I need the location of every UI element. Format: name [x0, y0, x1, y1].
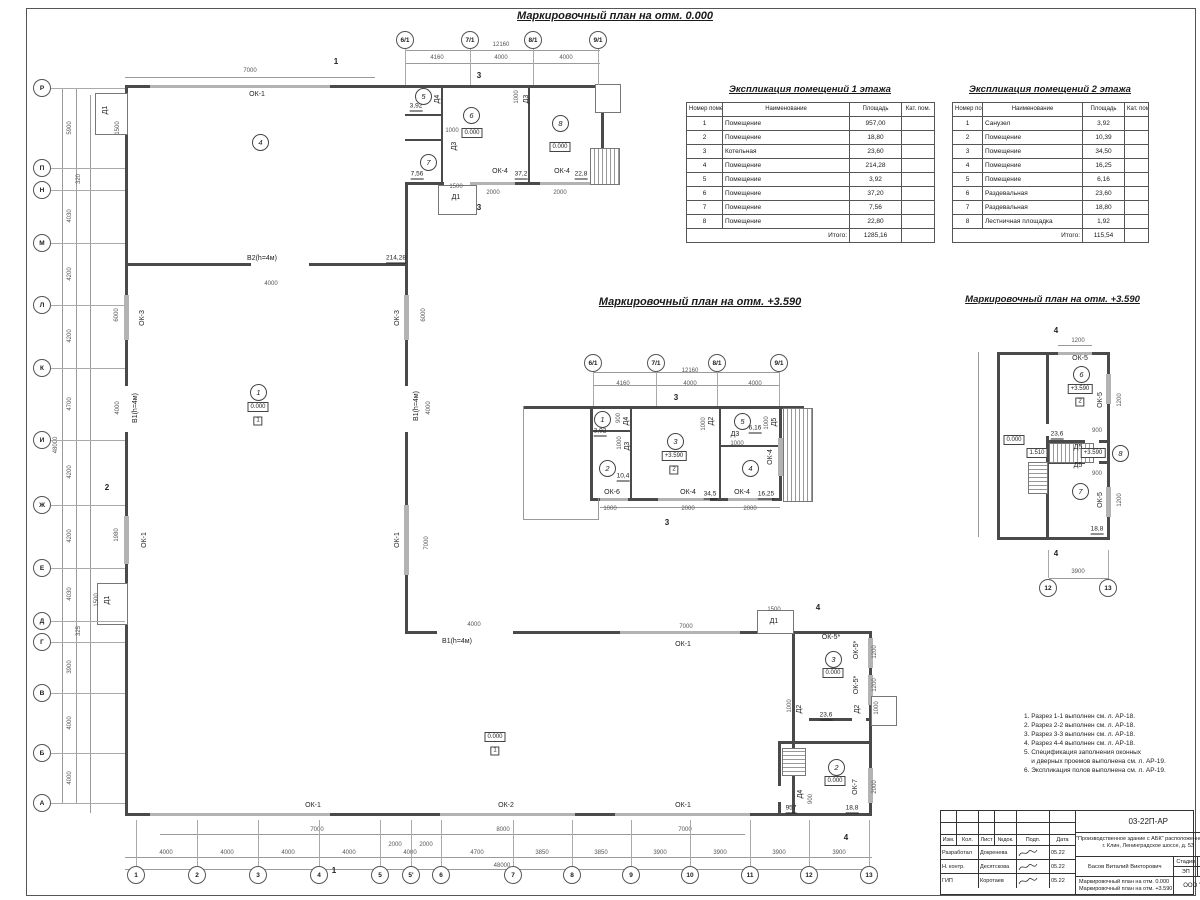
plan-label: Д1: [452, 194, 461, 202]
cell-number: 7: [687, 201, 723, 215]
cell-name: Помещение: [723, 173, 850, 187]
axis-circle: 6: [432, 866, 450, 884]
explication-table: Номер помещ. Наименование Площадь Кат. п…: [686, 102, 935, 243]
plan-label: 8000: [496, 826, 509, 834]
plan-label: 1000: [700, 417, 708, 430]
plan-label: В1(h=4м): [442, 638, 472, 646]
plan-label: 4: [844, 834, 848, 842]
plan-label: 1500: [114, 121, 122, 134]
stage-header-row: Стадия Лист: [1174, 857, 1200, 867]
window-segment: [600, 498, 628, 501]
plan-label: 4200: [66, 267, 74, 280]
axis-line: [51, 753, 125, 754]
role-date: 05.22: [1050, 874, 1075, 888]
cell-category: [902, 117, 935, 131]
plan-label: 7000: [679, 623, 692, 631]
cell-name: Помещение: [983, 131, 1083, 145]
plan-label: 2000: [743, 505, 756, 513]
axis-line: [869, 820, 870, 866]
table-row: 1 Санузел 3,92: [953, 117, 1149, 131]
cell-category: [902, 201, 935, 215]
window-segment: [124, 295, 129, 340]
axis-circle: 8/1: [524, 31, 542, 49]
empty-cell: [979, 823, 995, 834]
dimension-line: [76, 88, 77, 803]
cell-area: 3,92: [1083, 117, 1125, 131]
axis-line: [593, 372, 594, 406]
axis-circle: 8: [563, 866, 581, 884]
project-line2: г. Клин, Ленинградское шоссе, д. 53: [1076, 843, 1200, 850]
titleblock-header-row: Изм. Кол. Лист №док. Подп. Дата: [941, 835, 1075, 846]
plan-label: 3850: [535, 849, 548, 857]
cell-category: [902, 173, 935, 187]
plan-label: 2: [105, 484, 109, 492]
room-number: 8: [1112, 445, 1129, 462]
axis-circle: К: [33, 359, 51, 377]
plan-label: 0.000: [549, 142, 570, 152]
plan-label: Д4: [797, 790, 805, 799]
plan-label: Д2: [796, 705, 804, 714]
plan-label: 23,6: [1051, 431, 1064, 440]
cell-category: [1125, 131, 1149, 145]
plan-label: 6,16: [749, 425, 762, 434]
notes-list: 1. Разрез 1-1 выполнен см. л. АР-18.2. Р…: [1024, 712, 1196, 775]
plan-label: 1000: [786, 699, 794, 712]
plan-label: 320: [75, 174, 83, 184]
axis-line: [656, 372, 657, 406]
axis-line: [258, 820, 259, 866]
plan-label: ОК-3: [139, 310, 147, 326]
plan-label: 23,6: [820, 712, 833, 721]
table-row: 2 Помещение 18,80: [687, 131, 935, 145]
plan-label: ОК-5*: [853, 641, 861, 659]
cell-category: [1125, 187, 1149, 201]
cell-number: 5: [687, 173, 723, 187]
axis-line: [809, 820, 810, 866]
total-value: 1285,16: [850, 229, 902, 243]
plan-label: 1000: [616, 436, 624, 449]
axis-circle: Е: [33, 559, 51, 577]
plan-label: 4000: [281, 849, 294, 857]
plan-label: ОК-4: [734, 489, 750, 497]
axis-line: [717, 372, 718, 406]
plan0-title: Маркировочный план на отм. 0.000: [455, 10, 775, 22]
plan-label: 3900: [653, 849, 666, 857]
cell-area: 22,80: [850, 215, 902, 229]
room-number: 7: [420, 154, 437, 171]
plan-label: 0.000: [822, 668, 843, 678]
plan-label: 1: [334, 58, 338, 66]
door-opening: [852, 717, 866, 722]
subtitle-line1: Маркировочный план на отм. 0.000: [1079, 879, 1173, 886]
plan-label: +3.590: [1068, 384, 1093, 394]
plan-label: 3900: [66, 660, 74, 673]
roof-outline: [598, 498, 599, 520]
roof-outline: [523, 519, 599, 520]
plan-label: 6000: [420, 308, 428, 321]
axis-line: [197, 820, 198, 866]
wall-segment: [792, 631, 795, 816]
empty-cell: [1050, 823, 1075, 834]
table-row: 8 Лестничная площадка 1,92: [953, 215, 1149, 229]
room-number: 4: [252, 134, 269, 151]
plan-label: Д5: [1074, 462, 1083, 470]
plan-label: 7000: [310, 826, 323, 834]
cell-category: [1125, 117, 1149, 131]
cell-name: Помещение: [983, 145, 1083, 159]
col-kol: Кол.: [957, 835, 979, 845]
cell-category: [902, 229, 935, 243]
cell-name: Помещение: [983, 159, 1083, 173]
table-row: 7 Раздевальная 18,80: [953, 201, 1149, 215]
plan-label: 4000: [114, 401, 122, 414]
empty-cell: [979, 811, 995, 822]
table-row: 5 Помещение 3,92: [687, 173, 935, 187]
cell-name: Котельная: [723, 145, 850, 159]
cell-area: 3,92: [850, 173, 902, 187]
cell-area: 7,56: [850, 201, 902, 215]
cell-area: 1,92: [1083, 215, 1125, 229]
cell-area: 6,16: [1083, 173, 1125, 187]
note-line: 2. Разрез 2-2 выполнен см. л. АР-18.: [1024, 721, 1196, 730]
plan-label: 7000: [243, 67, 256, 75]
plan-label: 1980: [113, 528, 121, 541]
room-number: 8: [552, 115, 569, 132]
plan-label: 4000: [683, 380, 696, 388]
col-header-area: Площадь: [1083, 103, 1125, 117]
cell-name: Раздевальная: [983, 187, 1083, 201]
plan-label: 4: [1054, 550, 1058, 558]
axis-circle: Р: [33, 79, 51, 97]
wall-segment: [719, 406, 721, 500]
plan1-title: Маркировочный план на отм. +3.590: [585, 296, 815, 308]
subtitle-line2: Маркировочный план на отм. +3.590: [1079, 886, 1173, 893]
axis-line: [319, 820, 320, 866]
cell-number: 8: [687, 215, 723, 229]
cell-category: [902, 159, 935, 173]
axis-circle: 5': [402, 866, 420, 884]
window-segment: [124, 516, 129, 564]
plan-label: 1200: [1071, 337, 1084, 345]
plan-label: ОК-5*: [853, 676, 861, 694]
window-segment: [1106, 374, 1111, 404]
cell-number: 8: [953, 215, 983, 229]
plan-label: В1(h=4м): [413, 391, 421, 421]
cell-area: 16,25: [1083, 159, 1125, 173]
plan-label: 4030: [66, 209, 74, 222]
plan-label: 1: [490, 747, 499, 756]
titleblock-left: Изм. Кол. Лист №док. Подп. Дата Разработ…: [941, 811, 1076, 894]
plan-label: 1000: [445, 127, 458, 135]
plan-label: ОК-4: [554, 168, 570, 176]
note-line: 6. Экспликация полов выполнена см. л. АР…: [1024, 766, 1196, 775]
plan2-title: Маркировочный план на отм. +3.590: [950, 294, 1155, 305]
staircase: [1028, 462, 1048, 494]
staircase: [782, 748, 806, 776]
cell-name: Помещение: [723, 215, 850, 229]
cell-area: 23,60: [850, 145, 902, 159]
plan-label: +3.590: [662, 451, 687, 461]
cell-area: 23,60: [1083, 187, 1125, 201]
plan-label: Д1: [102, 106, 110, 115]
col-header-number: Номер помещ.: [953, 103, 983, 117]
plan-label: 3900: [713, 849, 726, 857]
cell-area: 34,50: [1083, 145, 1125, 159]
cell-name: Раздевальная: [983, 201, 1083, 215]
axis-line: [51, 168, 125, 169]
stage-sheet-grid: Стадия Лист ЭП 16: [1174, 857, 1200, 876]
cell-name: Помещение: [723, 131, 850, 145]
plan-label: 1200: [1116, 393, 1124, 406]
axis-line: [51, 693, 125, 694]
titleblock-spacer-row: [941, 823, 1075, 835]
axis-circle: Ж: [33, 496, 51, 514]
table-total-row: Итого: 115,54: [953, 229, 1149, 243]
plan-label: 4030: [66, 587, 74, 600]
col-header-name: Наименование: [723, 103, 850, 117]
axis-line: [572, 820, 573, 866]
plan-label: Д4: [623, 417, 631, 426]
axis-circle: 12: [1039, 579, 1057, 597]
axis-circle: М: [33, 234, 51, 252]
cell-number: 2: [687, 131, 723, 145]
cell-number: 4: [687, 159, 723, 173]
cell-number: 1: [687, 117, 723, 131]
wall-segment: [997, 352, 1000, 540]
plan-label: В2(h=4м): [247, 255, 277, 263]
role-date: 05.22: [1050, 846, 1075, 859]
window-segment: [404, 295, 409, 340]
plan-label: 1000: [513, 90, 521, 103]
cell-area: 10,39: [1083, 131, 1125, 145]
cell-number: 6: [687, 187, 723, 201]
dimension-line: [1049, 578, 1109, 579]
col-header-category: Кат. пом.: [902, 103, 935, 117]
plan-label: 4200: [66, 529, 74, 542]
entrance-porch: [97, 583, 128, 625]
cell-category: [1125, 215, 1149, 229]
cell-number: 5: [953, 173, 983, 187]
signature-icon: [1018, 848, 1038, 858]
axis-circle: А: [33, 794, 51, 812]
plan-label: 4700: [470, 849, 483, 857]
plan-label: 4000: [220, 849, 233, 857]
axis-circle: 11: [741, 866, 759, 884]
stage-value: ЭП: [1174, 867, 1198, 876]
plan-label: 4000: [403, 849, 416, 857]
company-name: ООО "Аль: [1174, 877, 1200, 894]
plan-label: 1200: [871, 678, 879, 691]
total-value: 115,54: [1083, 229, 1125, 243]
plan-label: 16,25: [758, 491, 774, 500]
col-data: Дата: [1050, 835, 1075, 845]
cell-category: [1125, 229, 1149, 243]
wall-segment: [523, 406, 804, 409]
plan-label: 3900: [832, 849, 845, 857]
plan-label: 957: [786, 805, 797, 814]
plan-label: Д5: [771, 418, 779, 427]
window-segment: [1106, 487, 1111, 517]
signature: [1017, 846, 1050, 859]
plan-label: В1(h=4м): [132, 393, 140, 423]
room-number: 3: [667, 433, 684, 450]
window-segment: [440, 813, 575, 816]
plan-label: 2000: [486, 189, 499, 197]
table-row: 6 Раздевальная 23,60: [953, 187, 1149, 201]
note-line: 3. Разрез 3-3 выполнен см. л. АР-18.: [1024, 730, 1196, 739]
stage-label: Стадия: [1174, 857, 1198, 866]
plan-label: ОК-4: [492, 168, 508, 176]
plan-label: 900: [615, 413, 623, 423]
cell-category: [1125, 145, 1149, 159]
plan-label: 3: [477, 204, 481, 212]
plan-label: ОК-5*: [822, 634, 840, 642]
axis-line: [513, 820, 514, 866]
window-segment: [150, 813, 330, 816]
door-opening: [777, 786, 782, 802]
titleblock-role-row: Н. контр. Десятскова 05.22: [941, 860, 1075, 874]
staircase: [783, 408, 813, 502]
cell-category: [902, 215, 935, 229]
axis-line: [598, 49, 599, 85]
plan-label: 1200: [871, 645, 879, 658]
axis-circle: 9/1: [770, 354, 788, 372]
room-number: 6: [1073, 366, 1090, 383]
note-line: и дверных проемов выполнена см. л. АР-19…: [1024, 757, 1196, 766]
stair-annex: [595, 84, 621, 113]
axis-line: [690, 820, 691, 866]
cell-number: 2: [953, 131, 983, 145]
plan-label: 34,5: [704, 491, 717, 500]
plan-label: 3: [665, 519, 669, 527]
axis-circle: 4: [310, 866, 328, 884]
axis-circle: Д: [33, 612, 51, 630]
cell-name: Помещение: [983, 173, 1083, 187]
plan-label: 1.510: [1026, 448, 1047, 458]
plan-label: 1000: [873, 701, 881, 714]
plan-label: 2: [1075, 398, 1084, 407]
wall-segment: [997, 352, 1110, 355]
cell-category: [902, 131, 935, 145]
wall-segment: [405, 139, 443, 141]
room-number: 7: [1072, 483, 1089, 500]
axis-circle: И: [33, 431, 51, 449]
cell-area: 18,80: [850, 131, 902, 145]
axis-circle: 9/1: [589, 31, 607, 49]
wall-segment: [590, 406, 593, 501]
axis-line: [405, 49, 406, 85]
cell-category: [1125, 201, 1149, 215]
cell-name: Лестничная площадка: [983, 215, 1083, 229]
plan-label: ОК-1: [675, 641, 691, 649]
staircase: [590, 148, 620, 185]
cell-area: 214,28: [850, 159, 902, 173]
dimension-line: [125, 857, 872, 858]
axis-line: [411, 820, 412, 866]
window-segment: [404, 505, 409, 575]
cell-area: 37,20: [850, 187, 902, 201]
role-label: ГИП: [941, 874, 979, 888]
plan-label: 37,2: [515, 171, 528, 180]
axis-circle: 9: [622, 866, 640, 884]
plan-label: 4160: [616, 380, 629, 388]
plan-label: ОК-7: [852, 779, 860, 795]
plan-label: 1: [253, 417, 262, 426]
axis-circle: 7: [504, 866, 522, 884]
titleblock-spacer-row: [941, 811, 1075, 823]
plan-label: +3.590: [1081, 448, 1106, 458]
axis-line: [51, 505, 125, 506]
cell-area: 18,80: [1083, 201, 1125, 215]
empty-cell: [995, 811, 1017, 822]
plan-label: ОК-1: [305, 802, 321, 810]
room-number: 5: [734, 413, 751, 430]
axis-line: [380, 820, 381, 866]
plan-label: 4700: [66, 397, 74, 410]
plan-label: ОК-2: [498, 802, 514, 810]
axis-line: [51, 88, 125, 89]
empty-cell: [941, 811, 957, 822]
axis-circle: 5: [371, 866, 389, 884]
plan-label: 5900: [66, 121, 74, 134]
axis-line: [1048, 550, 1049, 578]
plan-label: 6000: [113, 308, 121, 321]
plan-label: ОК-1: [675, 802, 691, 810]
wall-segment: [778, 741, 872, 744]
plan-label: 12160: [682, 367, 699, 375]
window-segment: [540, 182, 590, 185]
table-header-row: Номер помещ. Наименование Площадь Кат. п…: [687, 103, 935, 117]
col-list: Лист: [979, 835, 995, 845]
plan-label: 18,8: [846, 805, 859, 814]
plan-label: 1200: [1116, 493, 1124, 506]
axis-circle: 1: [127, 866, 145, 884]
plan-label: ОК-1: [394, 532, 402, 548]
axis-circle: 3: [249, 866, 267, 884]
titleblock-bottom-row: Маркировочный план на отм. 0.000 Маркиро…: [1076, 877, 1200, 894]
dimension-line: [160, 834, 745, 835]
titleblock-role-row: ГИП Коротаев 05.22: [941, 874, 1075, 888]
plan-label: 4000: [66, 771, 74, 784]
axis-circle: Г: [33, 633, 51, 651]
col-ndok: №док.: [995, 835, 1017, 845]
window-segment: [615, 813, 750, 816]
room-number: 3: [825, 651, 842, 668]
col-izm: Изм.: [941, 835, 957, 845]
empty-cell: [957, 823, 979, 834]
entrance-porch: [95, 93, 128, 135]
table-row: 4 Помещение 214,28: [687, 159, 935, 173]
room-number: 2: [599, 460, 616, 477]
plan-label: 2000: [388, 841, 401, 849]
axis-line: [631, 820, 632, 866]
sheet-subtitle: Маркировочный план на отм. 0.000 Маркиро…: [1076, 877, 1174, 894]
signature-icon: [1018, 876, 1038, 886]
gate-opening: [404, 386, 409, 432]
explication-table: Номер помещ. Наименование Площадь Кат. п…: [952, 102, 1149, 243]
plan-label: 3,92: [594, 428, 607, 437]
drawing-sheet: Маркировочный план на отм. 0.000 Маркиро…: [0, 0, 1200, 900]
window-segment: [150, 85, 330, 88]
plan-label: 4160: [430, 54, 443, 62]
cell-number: 3: [953, 145, 983, 159]
axis-line: [51, 305, 125, 306]
axis-line: [51, 568, 125, 569]
role-name: Коротаев: [979, 874, 1017, 888]
axis-circle: 8/1: [708, 354, 726, 372]
plan-label: 900: [1092, 427, 1102, 435]
plan-label: 3: [674, 394, 678, 402]
